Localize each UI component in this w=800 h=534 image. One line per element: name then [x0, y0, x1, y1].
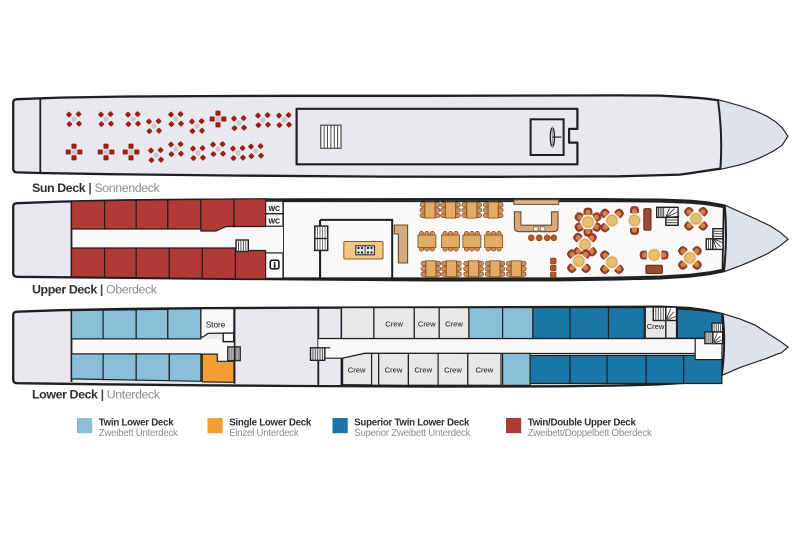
- svg-text:Single Lower Deck: Single Lower Deck: [229, 417, 312, 428]
- svg-text:WC: WC: [268, 206, 280, 213]
- svg-text:Superior Zweibett Unterdeck: Superior Zweibett Unterdeck: [354, 428, 470, 439]
- svg-text:Crew: Crew: [445, 320, 463, 329]
- svg-text:Zweibett Unterdeck: Zweibett Unterdeck: [99, 428, 178, 439]
- svg-text:Einzel Unterdeck: Einzel Unterdeck: [229, 428, 299, 439]
- svg-text:Crew: Crew: [418, 320, 436, 329]
- svg-text:Upper Deck | Oberdeck: Upper Deck | Oberdeck: [32, 283, 158, 297]
- svg-text:Crew: Crew: [348, 366, 366, 375]
- svg-text:Twin/Double Upper Deck: Twin/Double Upper Deck: [528, 417, 637, 428]
- svg-text:WC: WC: [268, 219, 280, 226]
- svg-text:Crew: Crew: [647, 322, 665, 331]
- svg-text:Twin Lower Deck: Twin Lower Deck: [99, 417, 175, 428]
- svg-text:Crew: Crew: [385, 366, 403, 375]
- svg-text:Lower Deck | Unterdeck: Lower Deck | Unterdeck: [32, 388, 161, 402]
- svg-text:Zweibett/Doppelbett Oberdeck: Zweibett/Doppelbett Oberdeck: [528, 428, 652, 439]
- svg-text:Superior Twin Lower Deck: Superior Twin Lower Deck: [354, 417, 470, 428]
- svg-text:Sun Deck | Sonnendeck: Sun Deck | Sonnendeck: [32, 181, 161, 195]
- svg-text:Crew: Crew: [385, 320, 403, 329]
- svg-text:Crew: Crew: [414, 366, 432, 375]
- svg-text:Crew: Crew: [476, 366, 494, 375]
- svg-text:Store: Store: [206, 320, 226, 329]
- svg-text:Crew: Crew: [444, 366, 462, 375]
